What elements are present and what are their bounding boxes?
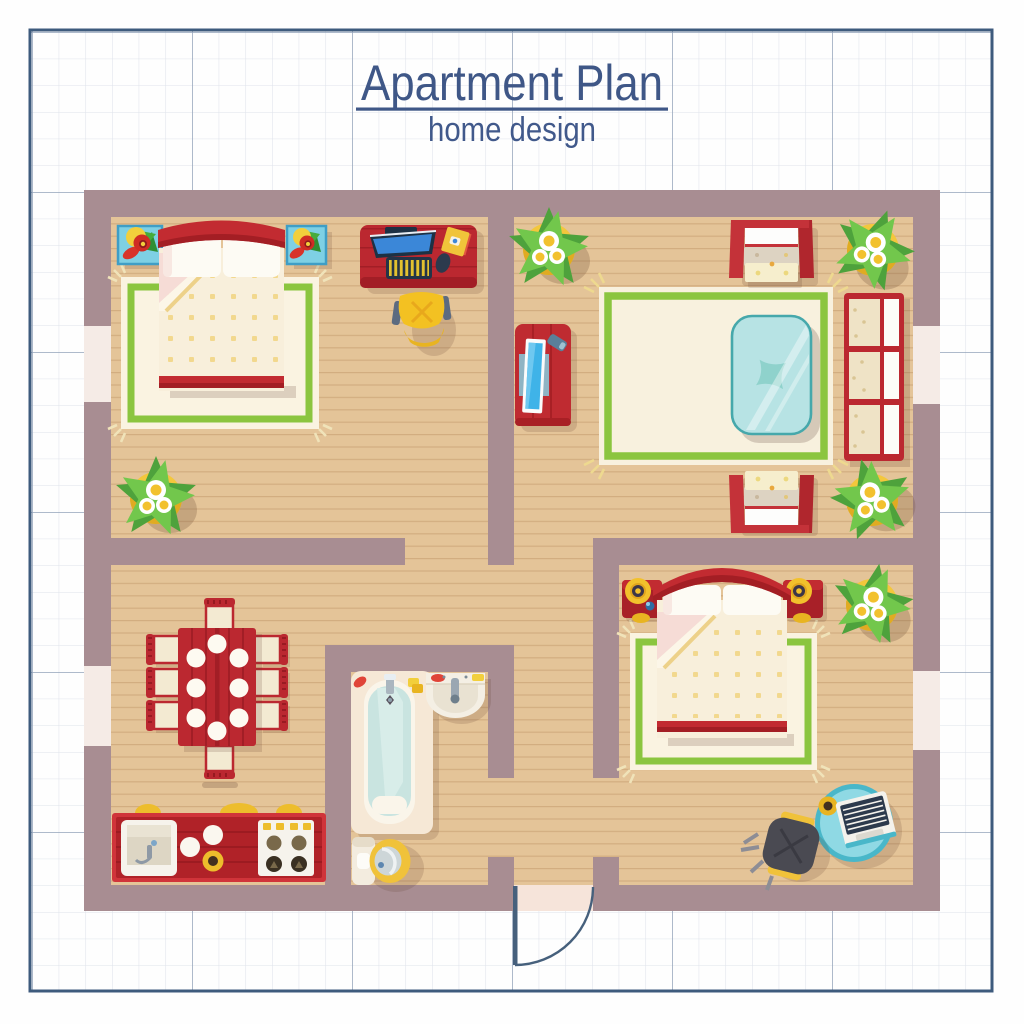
svg-text:home design: home design <box>428 111 596 149</box>
svg-text:Apartment Plan: Apartment Plan <box>361 55 663 111</box>
